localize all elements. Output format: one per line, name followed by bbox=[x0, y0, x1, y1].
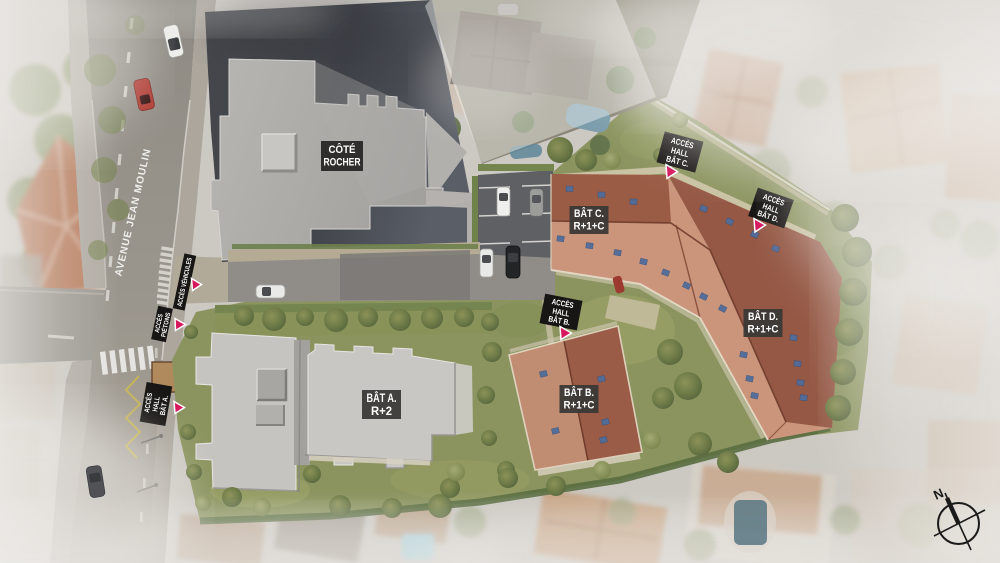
svg-text:R+1+C: R+1+C bbox=[574, 221, 605, 233]
svg-text:ROCHER: ROCHER bbox=[324, 157, 361, 169]
svg-text:CÔTÉ: CÔTÉ bbox=[329, 143, 356, 156]
svg-text:R+1+C: R+1+C bbox=[564, 400, 595, 412]
svg-text:BÂT D.: BÂT D. bbox=[748, 310, 778, 323]
svg-text:R+1+C: R+1+C bbox=[748, 324, 779, 336]
svg-text:BÂT A.: BÂT A. bbox=[367, 392, 397, 405]
svg-text:BÂT B.: BÂT B. bbox=[564, 386, 594, 399]
svg-text:BÂT C.: BÂT C. bbox=[574, 207, 604, 220]
svg-text:R+2: R+2 bbox=[371, 406, 392, 418]
